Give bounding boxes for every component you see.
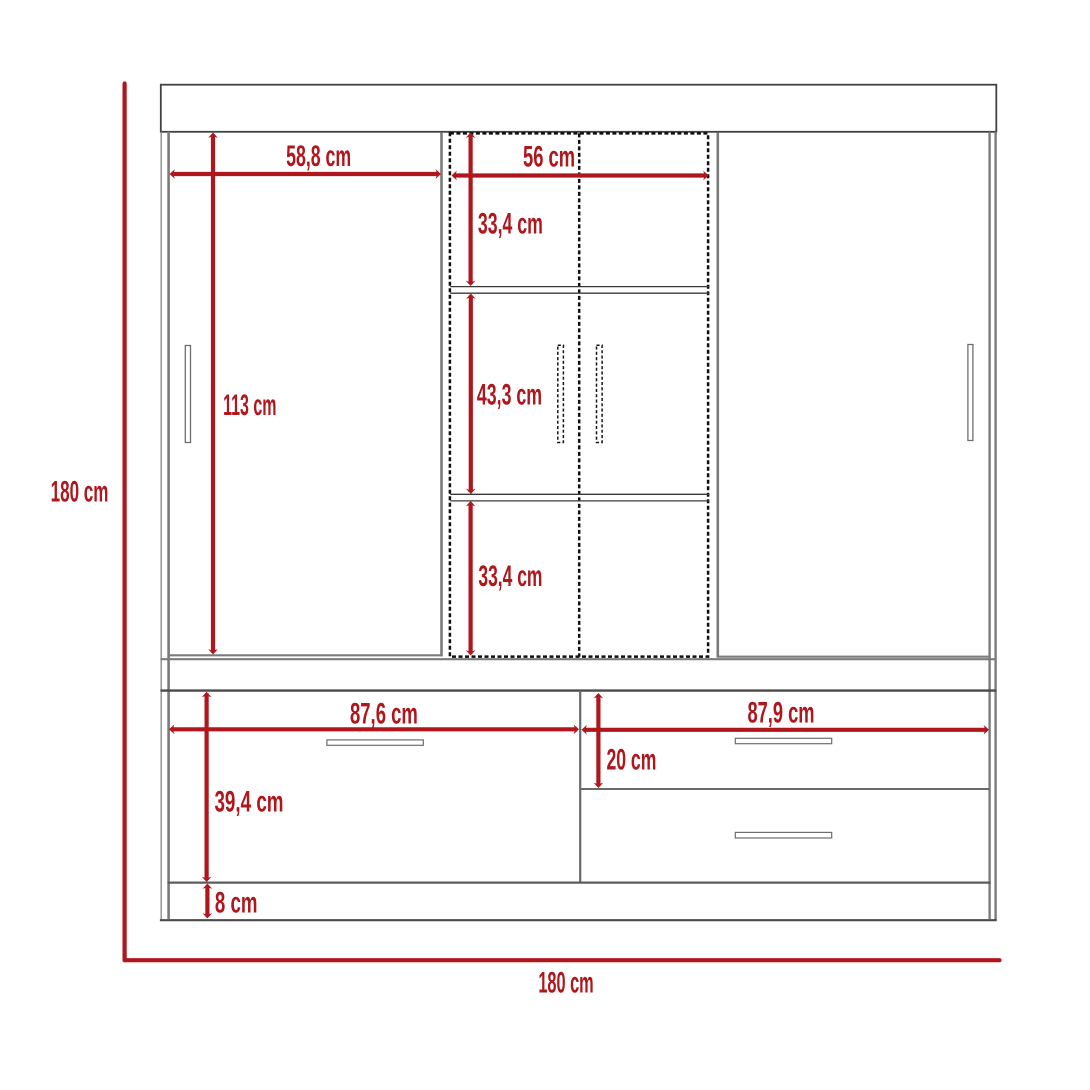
svg-text:33,4 cm: 33,4 cm bbox=[478, 208, 543, 241]
svg-text:39,4 cm: 39,4 cm bbox=[214, 786, 283, 818]
svg-text:20 cm: 20 cm bbox=[606, 744, 656, 777]
svg-text:56 cm: 56 cm bbox=[523, 141, 575, 173]
svg-text:87,9 cm: 87,9 cm bbox=[747, 697, 814, 729]
svg-text:180 cm: 180 cm bbox=[51, 476, 109, 509]
svg-text:58,8 cm: 58,8 cm bbox=[286, 141, 351, 174]
svg-text:87,6 cm: 87,6 cm bbox=[350, 698, 418, 730]
svg-text:113 cm: 113 cm bbox=[223, 389, 276, 423]
svg-text:33,4 cm: 33,4 cm bbox=[478, 560, 542, 593]
svg-text:43,3 cm: 43,3 cm bbox=[477, 379, 542, 412]
svg-text:8 cm: 8 cm bbox=[215, 887, 258, 919]
svg-text:180 cm: 180 cm bbox=[538, 966, 593, 999]
